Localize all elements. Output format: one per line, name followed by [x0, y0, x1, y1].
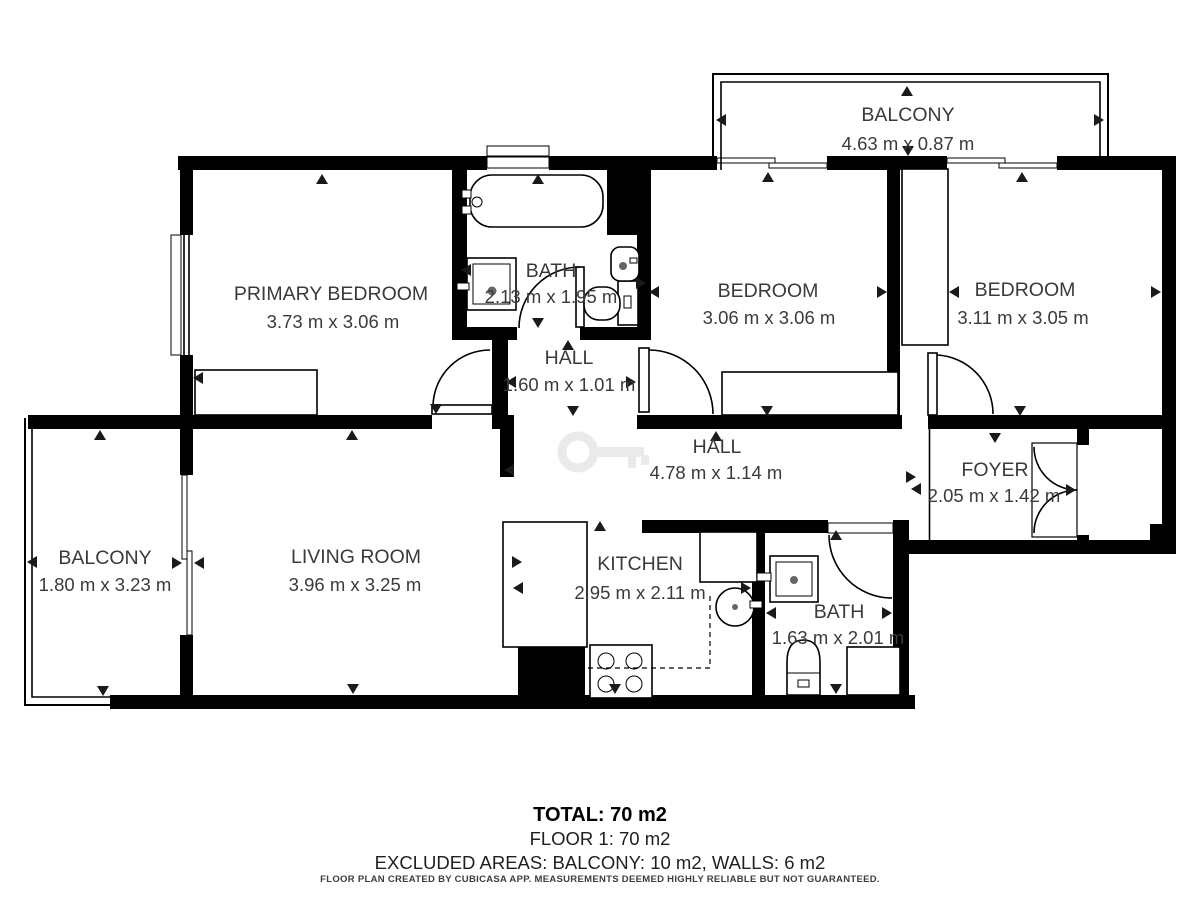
measure-arrow	[1094, 114, 1104, 126]
room-dims: 1.80 m x 3.23 m	[39, 574, 172, 595]
stove	[590, 645, 652, 698]
bedroom-dresser	[722, 372, 898, 415]
shower	[847, 647, 900, 695]
measure-arrow	[989, 433, 1001, 443]
measure-arrow	[901, 86, 913, 96]
bedroom-closet	[902, 169, 948, 345]
bath-window	[487, 146, 549, 168]
room-name: BALCONY	[861, 104, 954, 126]
burner	[598, 653, 614, 669]
walls	[28, 156, 1176, 709]
kitchen-cabinet	[700, 532, 757, 582]
room-name: KITCHEN	[597, 553, 683, 575]
measure-arrow	[906, 471, 916, 483]
measure-arrow	[766, 607, 776, 619]
room-name: BATH	[814, 601, 865, 623]
lower-bath-fixtures	[757, 556, 900, 695]
room-dims: 2.13 m x 1.95 m	[485, 286, 618, 307]
bedroom-right-door	[928, 353, 993, 415]
room-label-bath-lower: BATH 1.63 m x 2.01 m	[772, 601, 905, 648]
room-name: FOYER	[961, 459, 1028, 481]
measure-arrow	[911, 483, 921, 495]
measure-arrow	[882, 607, 892, 619]
measure-arrow	[1066, 484, 1076, 496]
room-name: BALCONY	[58, 547, 151, 569]
measure-arrow	[567, 406, 579, 416]
summary-block: TOTAL: 70 m2 FLOOR 1: 70 m2 EXCLUDED ARE…	[320, 804, 880, 885]
room-label-balcony-left: BALCONY 1.80 m x 3.23 m	[39, 547, 172, 595]
room-dims: 4.78 m x 1.14 m	[650, 462, 783, 483]
room-dims: 3.96 m x 3.25 m	[289, 574, 422, 595]
measure-arrow	[830, 684, 842, 694]
summary-total: TOTAL: 70 m2	[533, 804, 667, 826]
floor-plan-svg: BALCONY 4.63 m x 0.87 m PRIMARY BEDROOM …	[0, 0, 1200, 900]
room-label-bedroom-middle: BEDROOM 3.06 m x 3.06 m	[703, 280, 836, 328]
room-dims: 3.73 m x 3.06 m	[267, 311, 400, 332]
measure-arrow	[347, 684, 359, 694]
room-dims: 1.60 m x 1.01 m	[503, 374, 636, 395]
room-label-foyer: FOYER 2.05 m x 1.42 m	[928, 459, 1061, 506]
room-dims: 2.05 m x 1.42 m	[928, 485, 1061, 506]
measure-arrow	[1151, 286, 1161, 298]
bathtub-faucet	[472, 197, 482, 207]
summary-disclaimer: FLOOR PLAN CREATED BY CUBICASA APP. MEAS…	[320, 874, 880, 885]
measure-arrow	[346, 430, 358, 440]
measure-arrow	[594, 521, 606, 531]
measure-arrow	[949, 286, 959, 298]
measure-arrow	[194, 557, 204, 569]
cubicasa-key-watermark	[562, 436, 649, 468]
measure-arrow	[94, 430, 106, 440]
summary-floor: FLOOR 1: 70 m2	[530, 828, 671, 849]
measure-arrow	[532, 318, 544, 328]
room-label-primary-bedroom: PRIMARY BEDROOM 3.73 m x 3.06 m	[234, 283, 428, 332]
room-dims: 4.63 m x 0.87 m	[842, 133, 975, 154]
burner	[626, 653, 642, 669]
measure-arrow	[1016, 172, 1028, 182]
measure-arrow	[97, 686, 109, 696]
measure-arrow	[1014, 406, 1026, 416]
room-name: HALL	[693, 436, 742, 458]
room-label-living-room: LIVING ROOM 3.96 m x 3.25 m	[289, 546, 422, 595]
bedroom-middle-door	[639, 348, 713, 414]
floor-plan-page: BALCONY 4.63 m x 0.87 m PRIMARY BEDROOM …	[0, 0, 1200, 900]
room-name: BEDROOM	[975, 279, 1076, 301]
room-label-bedroom-right: BEDROOM 3.11 m x 3.05 m	[957, 279, 1088, 328]
room-dims: 2.95 m x 2.11 m	[574, 582, 705, 603]
primary-bedroom-dresser	[195, 370, 317, 415]
burner	[626, 676, 642, 692]
room-name: PRIMARY BEDROOM	[234, 283, 428, 305]
summary-excluded: EXCLUDED AREAS: BALCONY: 10 m2, WALLS: 6…	[375, 852, 826, 873]
room-label-hall-main: HALL 4.78 m x 1.14 m	[650, 436, 783, 483]
room-name: HALL	[545, 347, 594, 369]
room-dims: 3.06 m x 3.06 m	[703, 307, 836, 328]
room-dims: 3.11 m x 3.05 m	[957, 307, 1088, 328]
room-label-hall-small: HALL 1.60 m x 1.01 m	[503, 347, 636, 395]
measure-arrow	[877, 286, 887, 298]
measure-arrow	[762, 172, 774, 182]
room-dims: 1.63 m x 2.01 m	[772, 627, 905, 648]
room-name: LIVING ROOM	[291, 546, 421, 568]
room-label-kitchen: KITCHEN 2.95 m x 2.11 m	[574, 553, 705, 603]
kitchen-fixtures	[588, 588, 762, 698]
room-name: BEDROOM	[718, 280, 819, 302]
room-label-balcony-top: BALCONY 4.63 m x 0.87 m	[842, 104, 975, 154]
room-name: BATH	[526, 260, 577, 282]
measure-arrow	[316, 174, 328, 184]
